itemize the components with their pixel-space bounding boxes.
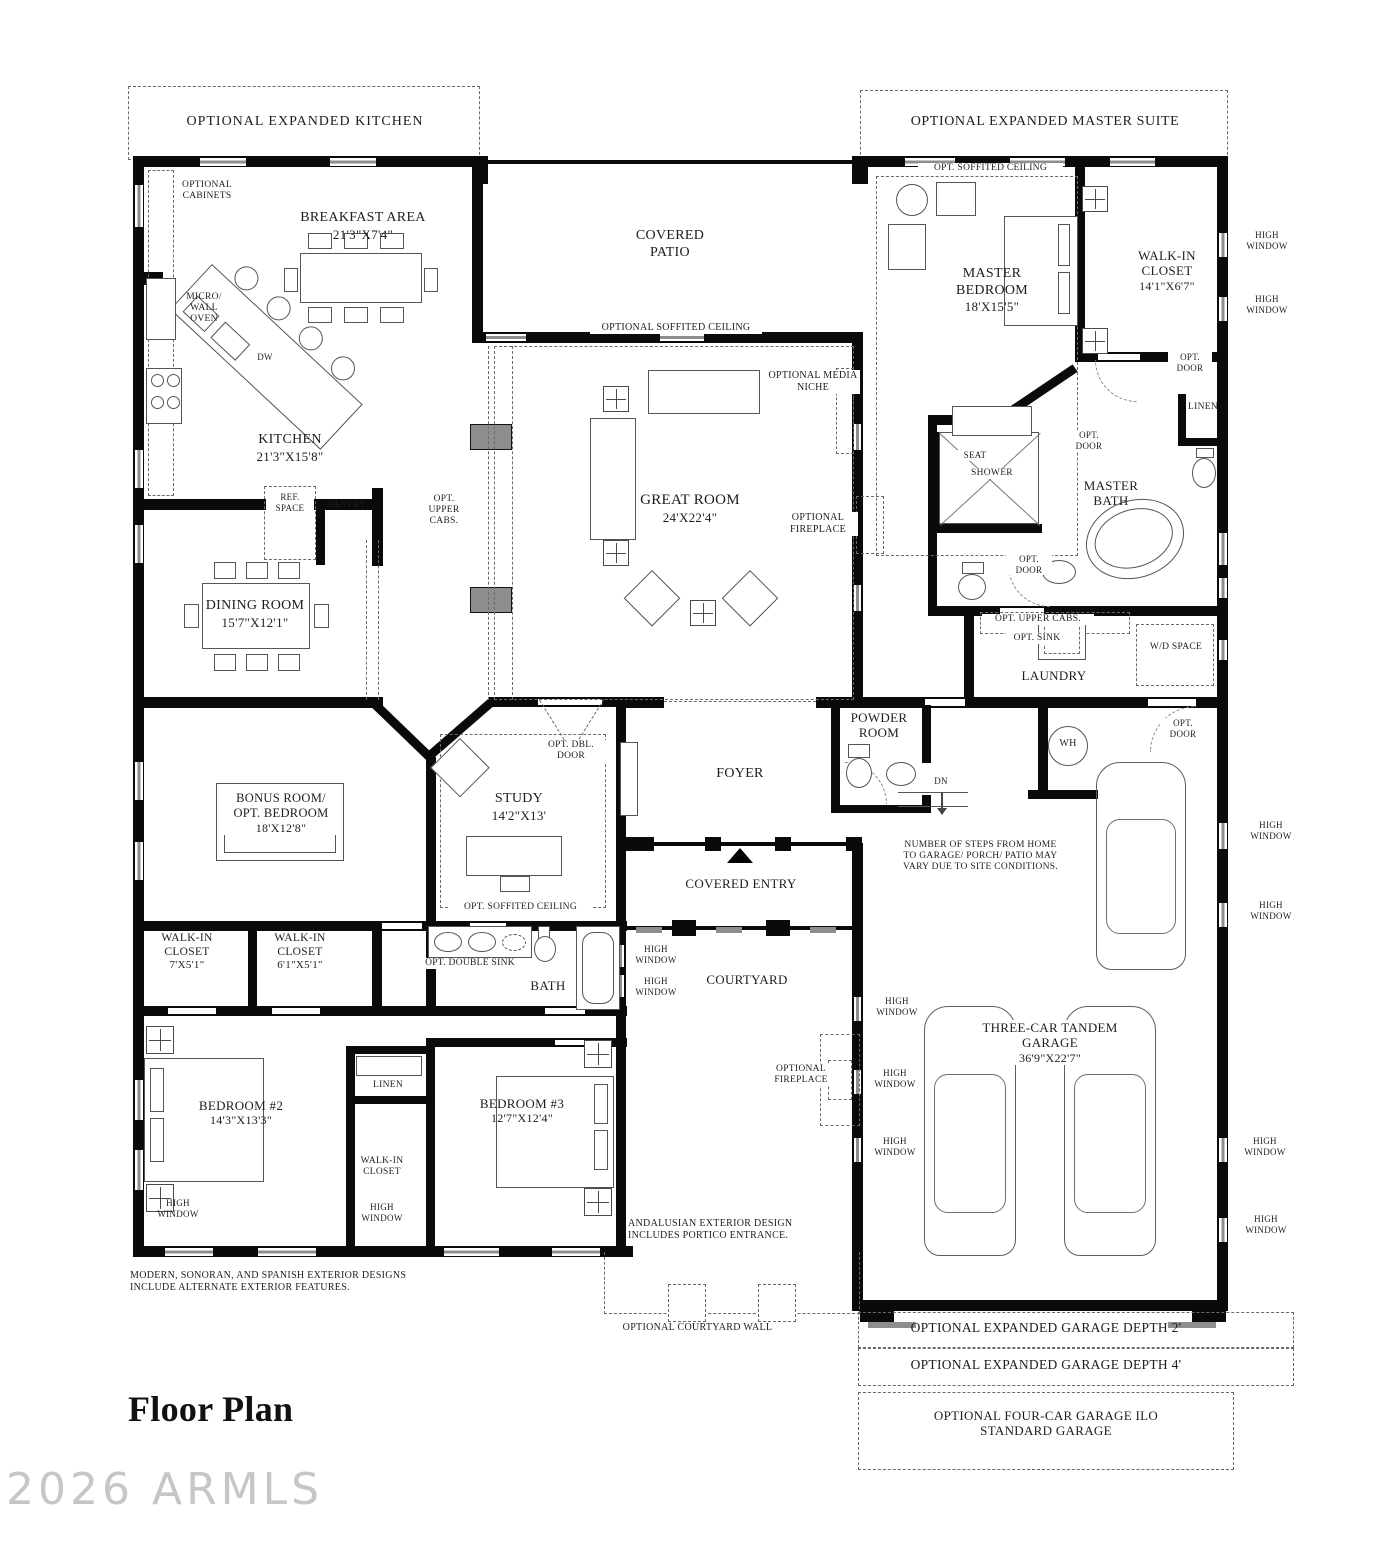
watermark: 2026 ARMLS [6,1464,406,1516]
courtyard-wall-pier [758,1284,796,1322]
column [626,837,654,851]
toilet [1196,448,1214,458]
window [135,1080,143,1120]
label-linen-master: LINEN [1180,402,1226,413]
linen-shelf [356,1056,422,1076]
label-dw: DW [248,352,282,363]
step-line [898,792,968,793]
label-courtyard: COURTYARD [688,972,806,987]
step-line [898,806,968,807]
chair [380,307,404,323]
chair [214,654,236,671]
sink-optional [502,934,526,951]
chair [278,562,300,579]
label-dn: DN [928,776,954,787]
label-dining-room: DINING ROOM 15'7"X12'1" [190,598,320,630]
door-opening [168,1008,216,1014]
desk [466,836,562,876]
label-master-bath: MASTER BATH [1068,478,1154,509]
label-bonus-room: BONUS ROOM/ OPT. BEDROOM 18'X12'8" [222,791,340,835]
wall [248,925,257,1011]
window [135,762,143,800]
label-wd-space: W/D SPACE [1140,642,1212,653]
label-garage: THREE-CAR TANDEM GARAGE 36'9"X22'7" [980,1020,1120,1065]
pillow [1058,272,1070,314]
pillow [150,1068,164,1112]
wall [426,1038,435,1246]
label-high-window: HIGH WINDOW [1235,1214,1297,1235]
wall [346,1046,430,1054]
column [775,837,791,851]
note-andalusian: ANDALUSIAN EXTERIOR DESIGN INCLUDES PORT… [628,1218,828,1242]
ceiling-break-line [664,701,816,702]
label-laundry-upper-cabs: OPT. UPPER CABS. [982,614,1094,625]
label-gr-fireplace: OPTIONAL FIREPLACE [778,512,858,536]
entry-door-marker [727,848,753,863]
pedestal-sink [846,758,872,788]
label-high-window: HIGH WINDOW [352,1202,412,1223]
wall [1038,705,1048,795]
niche [620,742,638,816]
label-optional-cabinets: OPTIONAL CABINETS [172,180,242,202]
high-window [1219,297,1227,321]
floor-plan: OPTIONAL EXPANDED KITCHEN OPTIONAL EXPAN… [0,0,1384,1560]
door-opening [382,923,422,929]
label-high-window: HIGH WINDOW [1236,294,1298,315]
chair [278,654,300,671]
label-breakfast-area: BREAKFAST AREA 21'3"X7'4" [288,210,438,242]
wall [964,615,974,705]
high-window [1219,233,1227,257]
page-title: Floor Plan [128,1388,388,1430]
window-sill [810,927,836,933]
dashed-line [366,540,367,700]
wall [133,156,483,167]
label-ref-space: REF. SPACE [266,492,314,513]
chair [424,268,438,292]
label-optional-expanded-kitchen: OPTIONAL EXPANDED KITCHEN [150,114,460,131]
window [552,1248,600,1256]
label-covered-entry: COVERED ENTRY [668,876,814,891]
sink [468,932,496,952]
pillow [594,1130,608,1170]
chair [344,307,368,323]
water-heater-label: WH [1048,738,1088,750]
window-sill [716,927,742,933]
high-window [854,1138,861,1162]
label-study-soffited: OPT. SOFFITED CEILING [448,902,593,913]
label-shower: SHOWER [962,468,1022,479]
note-steps: NUMBER OF STEPS FROM HOME TO GARAGE/ POR… [898,840,1063,874]
upper-cabs-line [488,346,489,700]
wall [852,156,868,184]
burner [151,396,164,409]
breakfast-table [300,253,422,303]
window [444,1248,499,1256]
courtyard-wall-pier [668,1284,706,1322]
label-bed3-closet: WALK-IN CLOSET [352,1156,412,1178]
wall [426,757,436,930]
wall [831,697,840,813]
label-great-room: GREAT ROOM 24'X22'4" [628,492,752,525]
toilet [534,936,556,962]
label-covered-patio: COVERED PATIO [615,228,725,261]
label-wic3: WALK-IN CLOSET 6'1"X5'1" [258,932,342,972]
wall-diagonal [372,701,433,760]
end-table [603,540,629,566]
label-high-window: HIGH WINDOW [1236,230,1298,251]
high-window [1219,903,1227,927]
label-courtyard-wall: OPTIONAL COURTYARD WALL [600,1322,795,1334]
window [135,1150,143,1190]
bench [952,406,1032,436]
window [1110,158,1155,166]
chair [214,562,236,579]
label-high-window: HIGH WINDOW [1240,900,1302,921]
door-opening [1148,699,1196,706]
table [896,184,928,216]
nightstand [1082,328,1108,354]
wall [372,921,382,1016]
window [135,842,143,880]
label-micro-wall-oven: MICRO/ WALL OVEN [180,292,228,326]
label-opt-door: OPT. DOOR [1066,430,1112,451]
label-opt-double-sink: OPT. DOUBLE SINK [424,958,516,969]
wall [1178,438,1228,446]
label-courtyard-fireplace: OPTIONAL FIREPLACE [768,1064,834,1086]
label-media-niche: OPTIONAL MEDIA NICHE [766,370,860,394]
entry-line [626,842,862,846]
door-opening [272,1008,320,1014]
toilet [1192,458,1216,488]
wall [133,697,383,708]
label-master-closet: WALK-IN CLOSET 14'1"X6'7" [1122,248,1212,293]
pillow [150,1118,164,1162]
high-window [1219,1218,1227,1242]
label-bedroom2: BEDROOM #2 14'3"X13'3" [182,1098,300,1127]
window [854,585,861,611]
label-laundry: LAUNDRY [1008,668,1100,683]
label-high-window: HIGH WINDOW [148,1198,208,1219]
high-window [854,997,861,1021]
label-high-window: HIGH WINDOW [1240,820,1302,841]
toilet [962,562,984,574]
label-opt-sink: OPT. SINK [1006,633,1068,644]
wall [860,1300,1228,1311]
nightstand [584,1188,612,1216]
label-opt-door: OPT. DOOR [1168,352,1212,373]
label-bath: BATH [520,978,576,993]
label-garage-depth2: OPTIONAL EXPANDED GARAGE DEPTH 2' [880,1320,1212,1336]
chair [500,876,530,892]
fireplace-outline [856,496,884,554]
window [486,334,526,341]
window [1219,640,1227,660]
wall [922,705,931,763]
label-bedroom3: BEDROOM #3 12'7"X12'4" [464,1096,580,1125]
nightstand [1082,186,1108,212]
label-gr-soffited-ceiling: OPTIONAL SOFFITED CEILING [590,322,762,334]
window [1219,533,1227,565]
label-wic2: WALK-IN CLOSET 7'X5'1" [146,932,228,972]
window [258,1248,316,1256]
column [705,837,721,851]
sink [434,932,462,952]
label-four-car-garage: OPTIONAL FOUR-CAR GARAGE ILO STANDARD GA… [898,1408,1194,1439]
end-table [690,600,716,626]
courtyard-wall-outline [604,1252,860,1314]
wall [346,1096,430,1104]
label-seat: SEAT [956,450,994,461]
toilet [886,762,916,786]
label-foyer: FOYER [704,766,776,783]
dn-arrow-head [937,808,947,815]
tub-inner [582,932,614,1004]
door-opening [925,699,965,706]
window [330,158,376,166]
door-arc [1095,360,1137,402]
chair [284,268,298,292]
window [660,334,704,341]
label-high-window: HIGH WINDOW [626,944,686,965]
label-high-window: HIGH WINDOW [626,976,686,997]
window [135,525,143,563]
column [766,920,790,936]
label-study: STUDY 14'2"X13' [476,791,562,823]
window [854,424,861,450]
wall [922,795,931,813]
label-master-soffited: OPT. SOFFITED CEILING [918,163,1063,174]
label-optional-expanded-master-suite: OPTIONAL EXPANDED MASTER SUITE [878,114,1212,131]
pillow [594,1084,608,1124]
label-opt-door: OPT. DOOR [1160,718,1206,739]
dashed-line [378,540,379,700]
chair [308,307,332,323]
label-high-window: HIGH WINDOW [866,1068,924,1089]
high-window [1219,1138,1227,1162]
label-garage-depth4: OPTIONAL EXPANDED GARAGE DEPTH 4' [880,1357,1212,1373]
nightstand [146,1026,174,1054]
label-opt-door: OPT. DOOR [1006,554,1052,575]
patio-edge [478,160,866,164]
label-powder-room: POWDER ROOM [840,710,918,741]
label-high-window: HIGH WINDOW [1234,1136,1296,1157]
wall [472,156,483,342]
label-opt-upper-cabs-left: OPT. UPPER CABS. [420,494,468,528]
window-sill [636,927,662,933]
armchair [888,224,926,270]
toilet [958,574,986,600]
nightstand [584,1040,612,1068]
label-kitchen: KITCHEN 21'3"X15'8" [238,432,342,464]
pedestal-sink [848,744,870,758]
label-high-window: HIGH WINDOW [868,996,926,1017]
wall [1028,790,1098,799]
chair [246,562,268,579]
upper-cabs-line [512,346,513,700]
chair [246,654,268,671]
high-window [1219,823,1227,849]
burner [167,374,180,387]
label-master-bedroom: MASTER BEDROOM 18'X15'5" [938,266,1046,314]
sofa [648,370,760,414]
label-opt-dbl-door: OPT. DBL. DOOR [536,740,606,762]
window [200,158,246,166]
window [135,450,143,488]
car [1096,762,1186,970]
note-exterior-designs: MODERN, SONORAN, AND SPANISH EXTERIOR DE… [130,1270,452,1294]
column [672,920,696,936]
chair [936,182,976,216]
window [165,1248,213,1256]
wall-oven [146,278,176,340]
label-high-window: HIGH WINDOW [866,1136,924,1157]
label-pantry: PANTRY [322,500,372,511]
wd-space-outline [1136,624,1214,686]
dn-arrow [941,792,943,808]
label-linen-bedrooms: LINEN [362,1080,414,1091]
end-table [603,386,629,412]
window [1219,578,1227,598]
burner [151,374,164,387]
burner [167,396,180,409]
window [135,185,143,227]
pillow [1058,224,1070,266]
